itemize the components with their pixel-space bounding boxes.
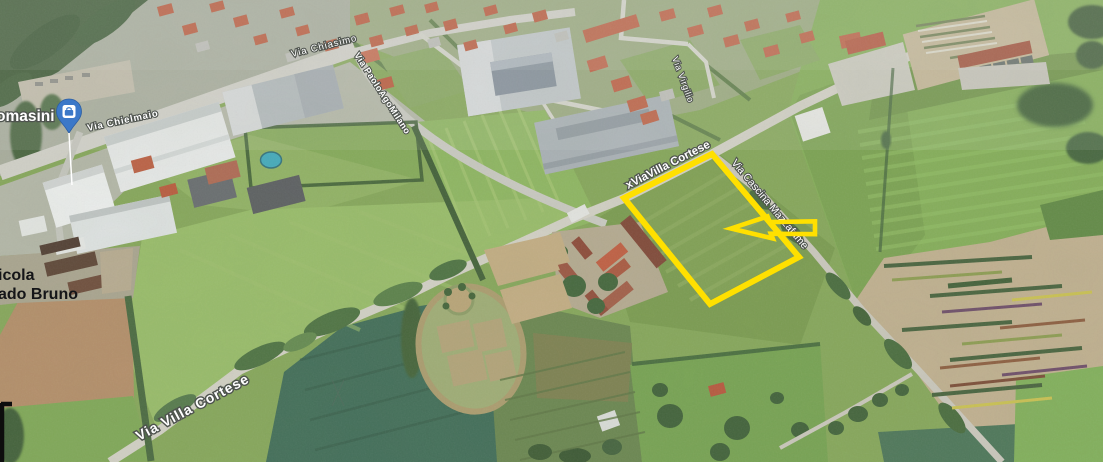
svg-text:omasini: omasini <box>0 108 55 125</box>
svg-text:icola: icola <box>0 267 35 284</box>
svg-text:ado Bruno: ado Bruno <box>0 286 78 303</box>
